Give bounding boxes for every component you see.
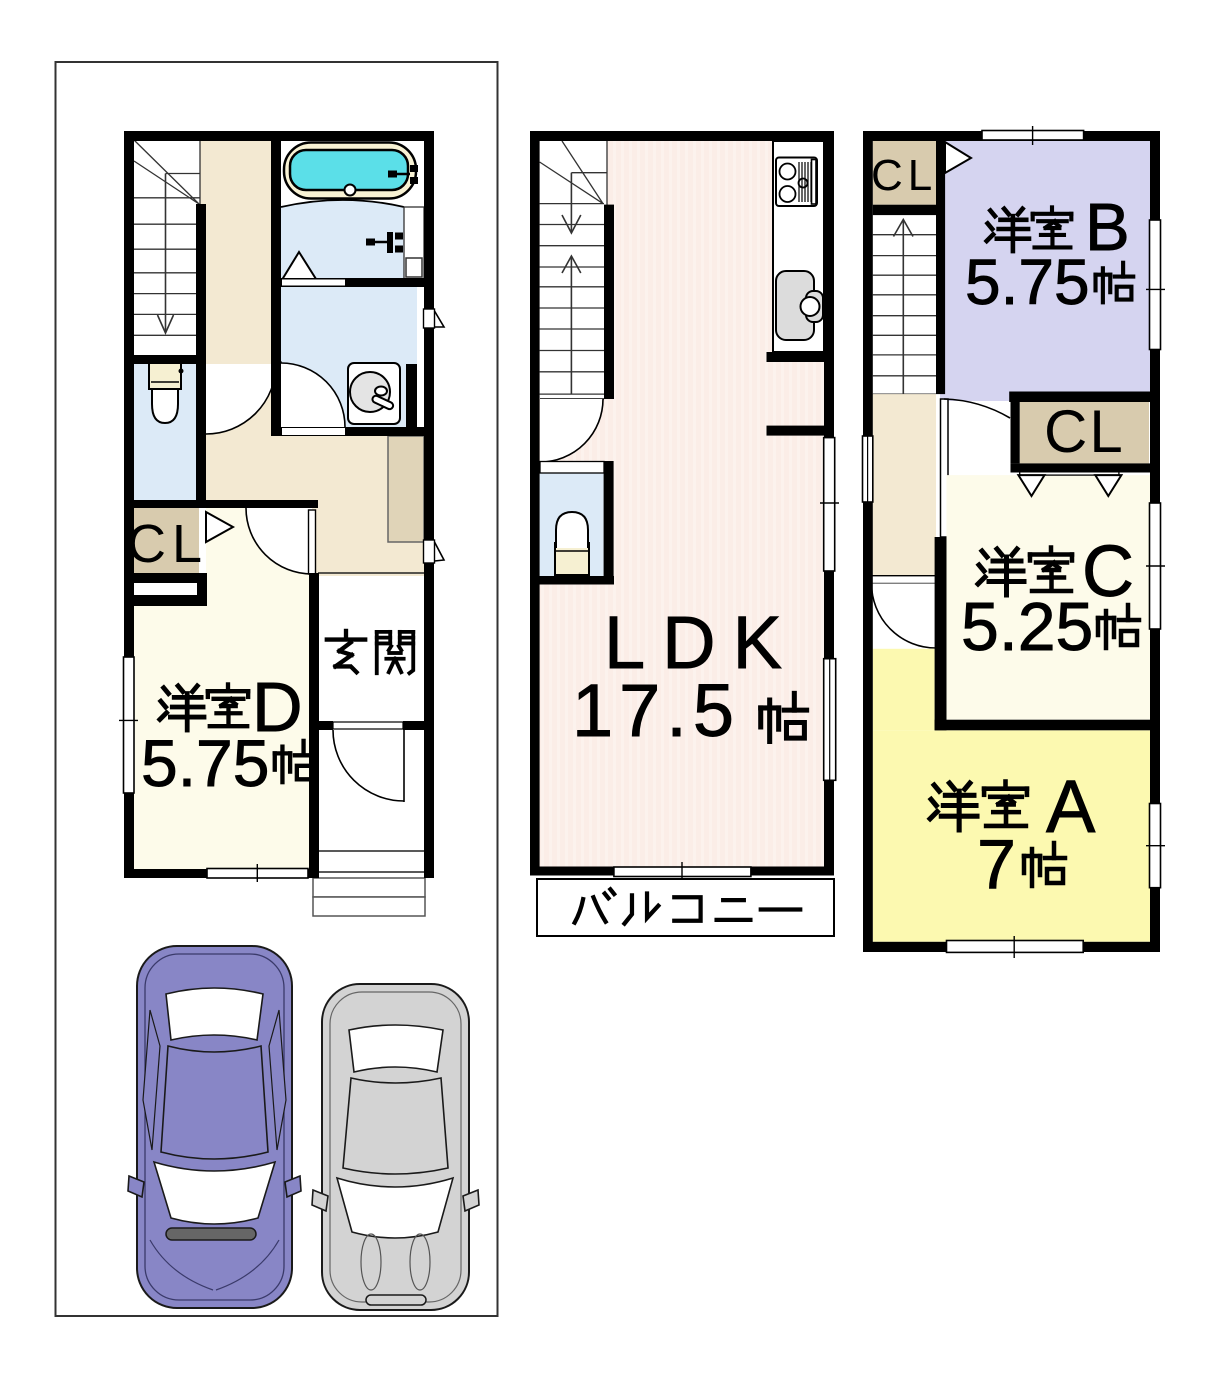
svg-text:CL: CL [1044,398,1125,465]
svg-text:5.75: 5.75 [141,726,269,800]
svg-text:17.5: 17.5 [572,669,740,752]
svg-text:B: B [1085,190,1130,265]
svg-text:A: A [1046,765,1096,848]
svg-text:CL: CL [871,151,937,200]
svg-text:CL: CL [127,514,208,574]
svg-text:7: 7 [977,825,1016,903]
svg-text:5.25: 5.25 [961,589,1093,665]
svg-text:5.75: 5.75 [965,246,1090,318]
